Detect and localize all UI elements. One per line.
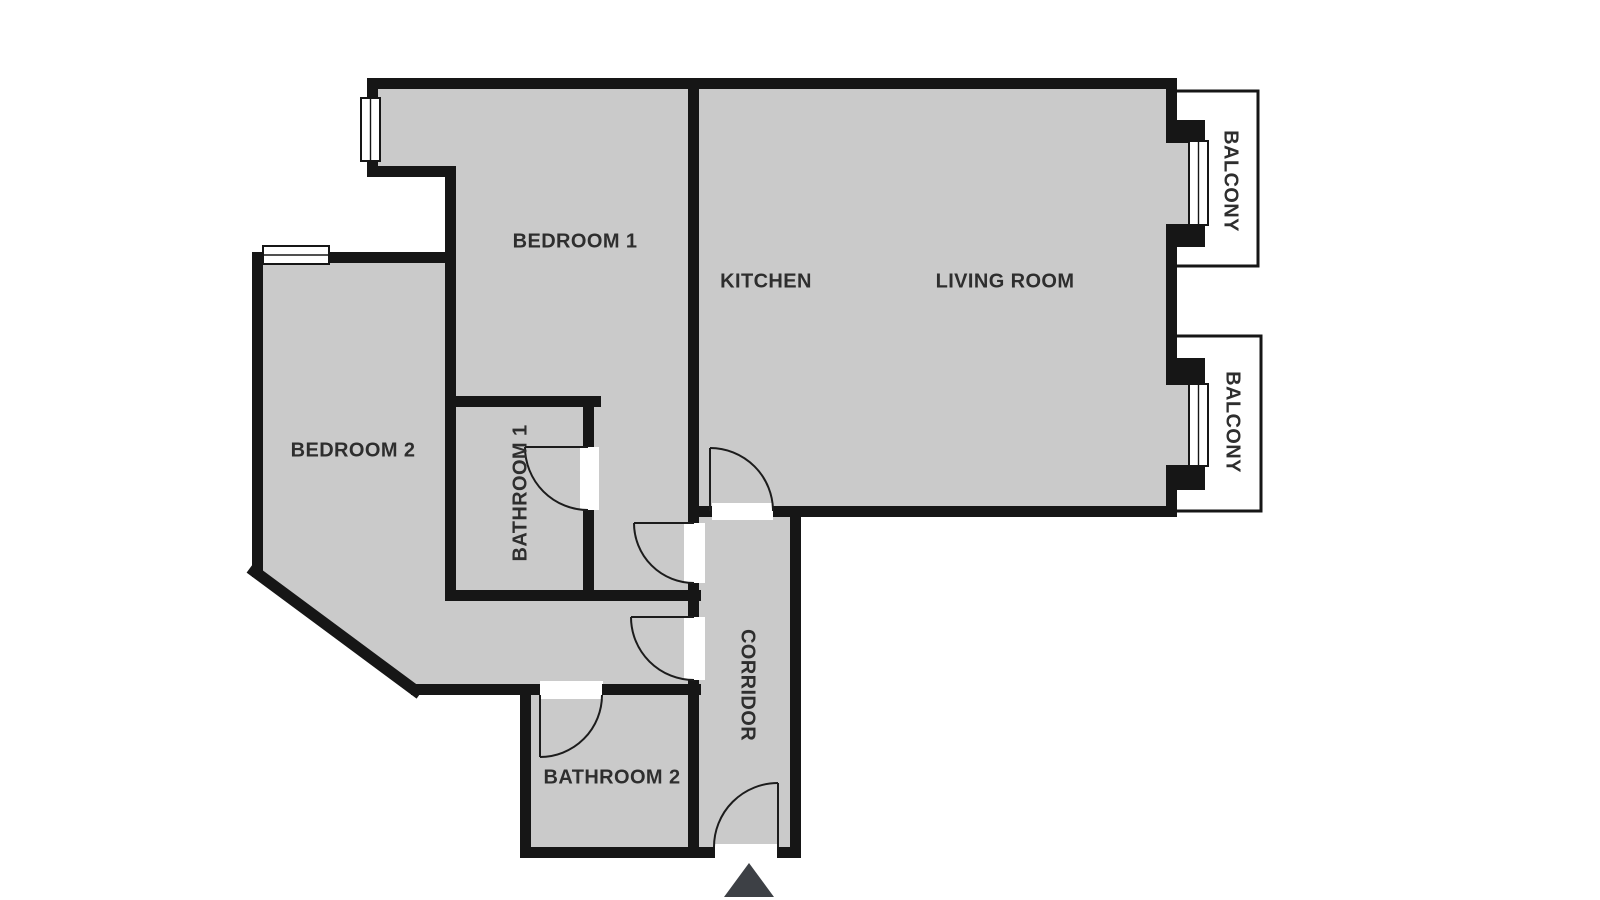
- wall-bathroom1-bottom: [445, 590, 701, 601]
- wall-corridor-left-top: [688, 506, 699, 523]
- bedroom1-label: BEDROOM 1: [513, 231, 638, 254]
- bathroom2-label: BATHROOM 2: [544, 767, 681, 790]
- livingroom-window-balcony1: [1189, 141, 1208, 225]
- wall-bay1-top: [1166, 120, 1205, 143]
- kitchen-label: KITCHEN: [720, 271, 812, 294]
- balcony2-label: BALCONY: [1221, 371, 1244, 473]
- wall-bathroom2-left: [520, 684, 531, 858]
- wall-kitchen-divider: [688, 78, 699, 517]
- bedroom2-label: BEDROOM 2: [291, 440, 416, 463]
- floorplan-drawing: [0, 0, 1600, 900]
- wall-bathroom2-top-right: [602, 684, 701, 695]
- wall-bay1-bottom: [1166, 224, 1205, 247]
- kitchen-door-gap: [712, 503, 773, 520]
- wall-jog: [367, 166, 456, 177]
- bedroom2-window: [263, 246, 329, 264]
- corridor-upper-door-gap: [684, 523, 705, 583]
- wall-corridor-right: [790, 506, 801, 858]
- wall-bathroom1-right-upper: [583, 396, 594, 447]
- wall-bathroom1-right-lower: [583, 510, 594, 601]
- apartment-floor: [252, 78, 1205, 858]
- wall-bottom-left: [520, 847, 715, 858]
- livingroom-window-balcony2: [1189, 384, 1208, 466]
- wall-bathroom1-top: [445, 396, 601, 407]
- corridor-label: CORRIDOR: [736, 629, 759, 741]
- corridor-lower-door-gap: [684, 617, 705, 680]
- wall-right-middle: [1166, 247, 1177, 358]
- wall-right-upper: [1166, 78, 1177, 120]
- livingroom-label: LIVING ROOM: [936, 271, 1075, 294]
- wall-bay2-bottom: [1166, 465, 1205, 490]
- bathroom1-door-gap: [580, 447, 599, 510]
- wall-bedroom2-top-right: [324, 252, 456, 263]
- wall-corridor-left-bottom: [688, 680, 699, 858]
- bathroom1-label: BATHROOM 1: [510, 425, 533, 562]
- wall-right-lower: [1166, 490, 1177, 517]
- entrance-arrow-icon: [724, 863, 774, 897]
- wall-bay2-top: [1166, 358, 1205, 385]
- wall-top: [367, 78, 1177, 89]
- wall-bedroom2-left: [252, 252, 263, 577]
- entrance-door-gap: [715, 844, 777, 862]
- bathroom2-door-gap: [540, 681, 603, 699]
- balcony1-label: BALCONY: [1219, 130, 1242, 232]
- wall-divider-bedrooms: [445, 166, 456, 601]
- bedroom1-window: [361, 98, 380, 161]
- floorplan-canvas: BEDROOM 1 KITCHEN LIVING ROOM BEDROOM 2 …: [0, 0, 1600, 900]
- wall-livingroom-bottom: [773, 506, 1177, 517]
